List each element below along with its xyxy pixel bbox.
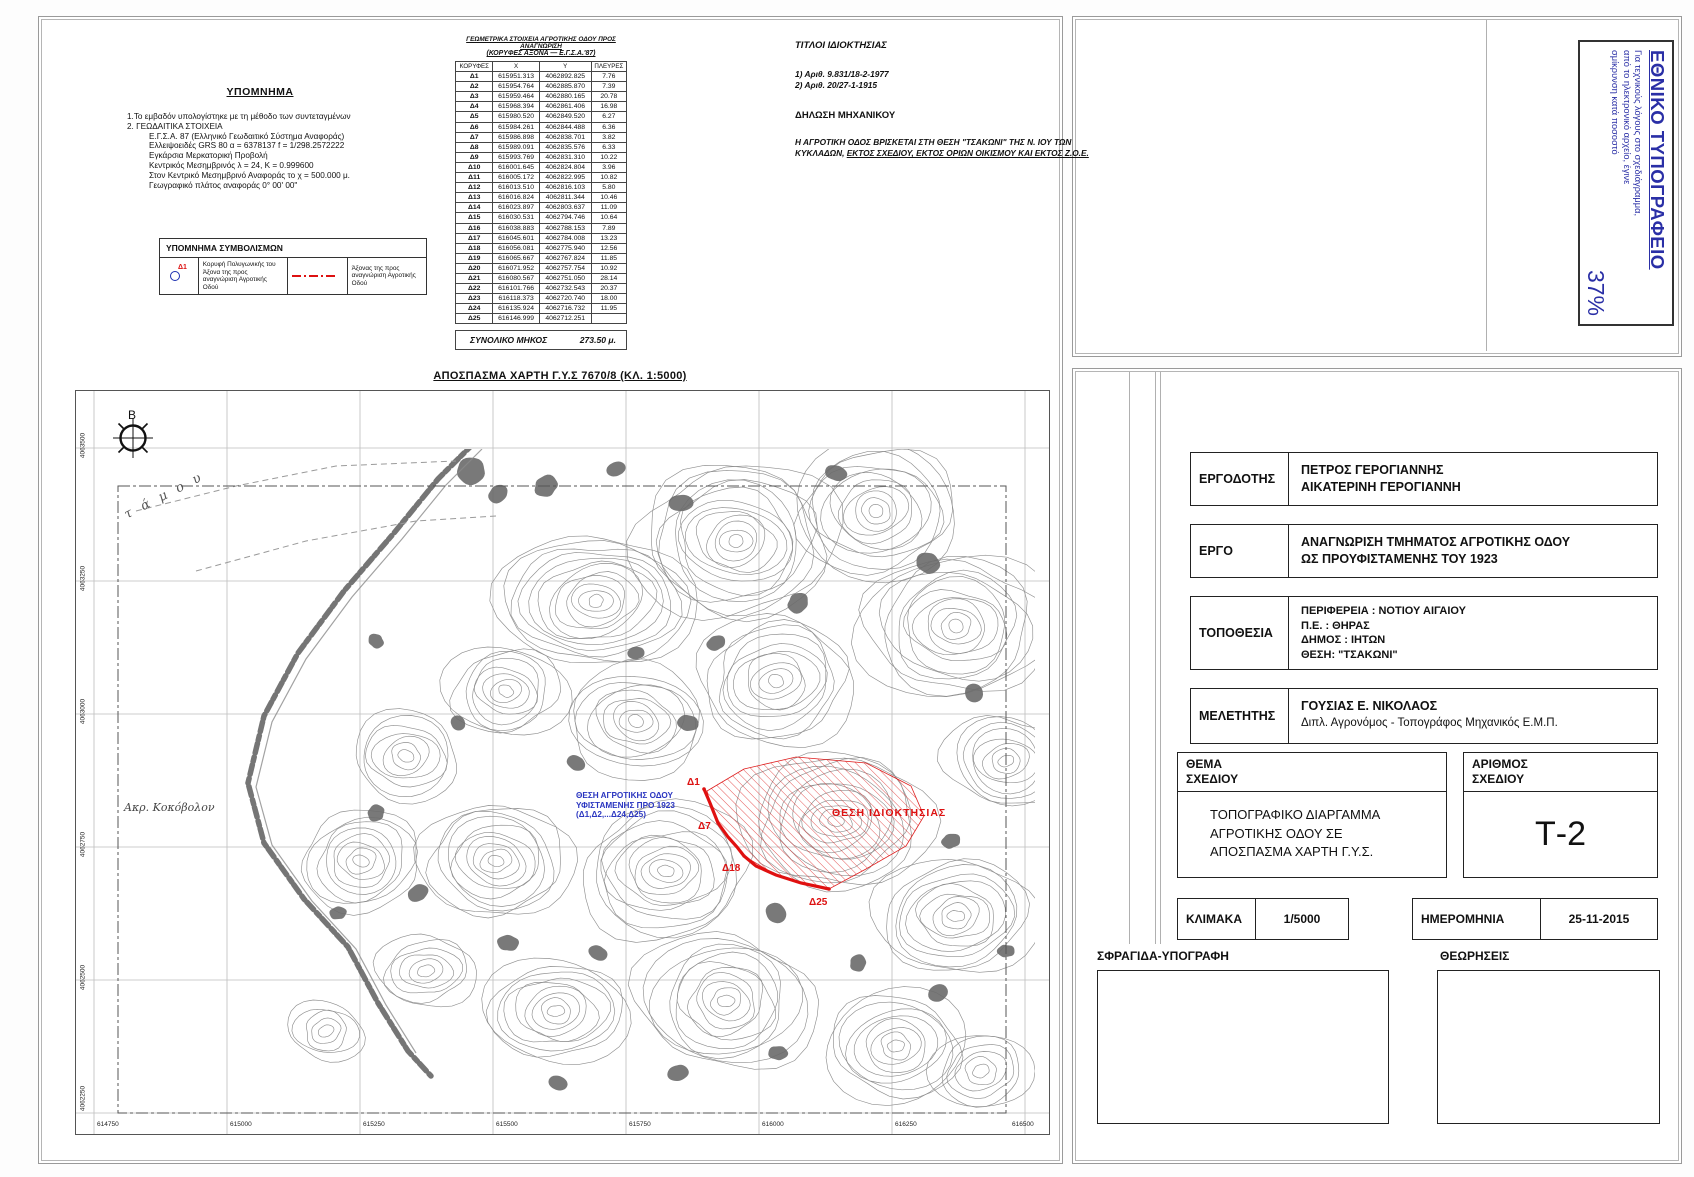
legend-section: 1.Το εμβαδόν υπολογίστηκε με τη μέθοδο τ… [127,112,467,190]
number-label: ΑΡΙΘΜΟΣ [1472,757,1649,772]
coords-cell: 6.33 [591,142,626,152]
vertex-circle-icon [170,271,180,281]
coords-cell: 616118.373 [493,294,539,304]
subject-line: ΤΟΠΟΓΡΑΦΙΚΟ ΔΙΑΡΓΑΜΜΑ [1210,806,1446,825]
col-header: Υ [539,62,591,72]
legend-line: 2. ΓΕΩΔΑΙΤΙΚΑ ΣΤΟΙΧΕΙΑ [127,122,467,132]
coords-cell: Δ14 [456,203,493,213]
declaration-line: Η ΑΓΡΟΤΙΚΗ ΟΔΟΣ ΒΡΙΣΚΕΤΑΙ ΣΤΗ ΘΕΣΗ "ΤΣΑΚ… [795,137,1155,148]
coords-cell: 4062835.576 [539,142,591,152]
subject-label: ΣΧΕΔΙΟΥ [1186,772,1438,787]
coords-row: Δ23616118.3734062720.74018.00 [456,294,627,304]
drawing-number-box: ΑΡΙΘΜΟΣ ΣΧΕΔΙΟΥ Τ-2 [1463,752,1658,878]
coords-cell: 10.22 [591,152,626,162]
coords-cell: 7.76 [591,72,626,82]
coords-cell: 615986.898 [493,132,539,142]
seal-signature-label: ΣΦΡΑΓΙΔΑ-ΥΠΟΓΡΑΦΗ [1094,948,1232,964]
coords-row: Δ19616065.6674062767.82411.85 [456,253,627,263]
coords-row: Δ25616146.9994062712.251 [456,314,627,324]
coords-cell: 3.96 [591,162,626,172]
location-line: ΔΗΜΟΣ : ΙΗΤΩΝ [1301,633,1657,648]
coords-cell: Δ20 [456,263,493,273]
topographic-map: B Δ1Δ7Δ18Δ25 614750615000615250615500615… [75,390,1050,1135]
coords-cell: 20.37 [591,284,626,294]
coords-row: Δ21616080.5674062751.05028.14 [456,273,627,283]
axis-symbol-desc: Άξονας της προς αναγνώριση Αγροτικής Οδο… [347,258,426,294]
y-tick-label: 4062250 [80,1079,87,1119]
declaration-line: ΚΥΚΛΑΔΩΝ, ΕΚΤΟΣ ΣΧΕΔΙΟΥ, ΕΚΤΟΣ ΟΡΙΩΝ ΟΙΚ… [795,148,1155,159]
y-tick-label: 4063000 [80,692,87,732]
coords-cell: 4062775.940 [539,243,591,253]
total-length-row: ΣΥΝΟΛΙΚΟ ΜΗΚΟΣ 273.50 μ. [455,330,627,350]
drawing-subject-box: ΘΕΜΑ ΣΧΕΔΙΟΥ ΤΟΠΟΓΡΑΦΙΚΟ ΔΙΑΡΓΑΜΜΑ ΑΓΡΟΤ… [1177,752,1447,878]
legend-detail: Γεωγραφικό πλάτος αναφοράς 0° 00' 00" [127,181,467,191]
coords-row: Δ8615989.0914062835.5766.33 [456,142,627,152]
fold-mark [1486,20,1487,351]
project-line: ΑΝΑΓΝΩΡΙΣΗ ΤΜΗΜΑΤΟΣ ΑΓΡΟΤΙΚΗΣ ΟΔΟΥ [1301,534,1657,551]
declaration-text: ΚΥΚΛΑΔΩΝ, [795,148,847,158]
vertex-symbol: Δ1 [160,258,198,294]
declaration-section: ΔΗΛΩΣΗ ΜΗΧΑΝΙΚΟΥ Η ΑΓΡΟΤΙΚΗ ΟΔΟΣ ΒΡΙΣΚΕΤ… [795,110,1155,159]
map-tick-labels: 6147506150006152506155006157506160006162… [76,391,1049,1134]
declaration-heading: ΔΗΛΩΣΗ ΜΗΧΑΝΙΚΟΥ [795,110,1155,121]
coords-cell: 616045.601 [493,233,539,243]
coords-cell: 4062751.050 [539,273,591,283]
printing-office-stamp: ΕΘΝΙΚΟ ΤΥΠΟΓΡΑΦΕΙΟ Για τεχνικούς λόγους … [1578,40,1674,326]
coords-cell: 28.14 [591,273,626,283]
titleblock-row-client: ΕΡΓΟΔΟΤΗΣ ΠΕΤΡΟΣ ΓΕΡΟΓΙΑΝΝΗΣ ΑΙΚΑΤΕΡΙΝΗ … [1190,452,1658,506]
note-line: ΘΕΣΗ ΑΓΡΟΤΙΚΗΣ ΟΔΟΥ [576,791,706,801]
number-label: ΣΧΕΔΙΟΥ [1472,772,1649,787]
y-tick-label: 4062500 [80,958,87,998]
coords-cell: 4062849.520 [539,112,591,122]
approvals-box [1437,970,1660,1124]
titleblock-row-project: ΕΡΓΟ ΑΝΑΓΝΩΡΙΣΗ ΤΜΗΜΑΤΟΣ ΑΓΡΟΤΙΚΗΣ ΟΔΟΥ … [1190,524,1658,578]
legend-detail: Εγκάρσια Μερκατορική Προβολή [127,151,467,161]
coords-cell: 4062712.251 [539,314,591,324]
location-line: ΘΕΣΗ: "ΤΣΑΚΩΝΙ" [1301,648,1657,663]
location-line: Π.Ε. : ΘΗΡΑΣ [1301,619,1657,634]
coords-table: ΚΟΡΥΦΕΣ Χ Υ ΠΛΕΥΡΕΣ Δ1615951.3134062892.… [455,61,627,324]
stamp-line: σμίκρυνση κατά ποσοστό [1609,50,1620,316]
surveyor-label: ΜΕΛΕΤΗΤΗΣ [1191,689,1289,743]
ownership-titles-section: ΤΙΤΛΟΙ ΙΔΙΟΚΤΗΣΙΑΣ 1) Αριθ. 9.831/18-2-1… [795,40,1095,90]
coords-cell: Δ6 [456,122,493,132]
drawing-number: Τ-2 [1464,792,1657,876]
symbols-legend: ΥΠΟΜΝΗΜΑ ΣΥΜΒΟΛΙΣΜΩΝ Δ1 Κορυφή Πολυγωνικ… [159,238,427,295]
map-extract-title: ΑΠΟΣΠΑΣΜΑ ΧΑΡΤΗ Γ.Υ.Σ 7670/8 (ΚΛ. 1:5000… [370,370,750,382]
cape-place-label: Ακρ. Κοκόβολον [124,801,215,814]
date-value: 25-11-2015 [1541,899,1657,939]
coords-cell: 18.00 [591,294,626,304]
stamp-line: Για τεχνικούς λόγους στο σχεδιάγραμμα, [1632,50,1643,316]
coords-cell: Δ13 [456,193,493,203]
x-tick-label: 616500 [1012,1121,1034,1128]
coords-cell: 616038.883 [493,223,539,233]
coords-row: Δ22616101.7664062732.54320.37 [456,284,627,294]
coords-cell: Δ1 [456,72,493,82]
titleblock-row-surveyor: ΜΕΛΕΤΗΤΗΣ ΓΟΥΣΙΑΣ Ε. ΝΙΚΟΛΑΟΣ Διπλ. Αγρο… [1190,688,1658,744]
coords-row: Δ5615980.5204062849.5206.27 [456,112,627,122]
note-line: (Δ1,Δ2,...Δ24,Δ25) [576,810,706,820]
coords-row: Δ2615954.7644062885.8707.39 [456,82,627,92]
coords-cell: Δ4 [456,102,493,112]
coords-cell: 4062824.804 [539,162,591,172]
subject-line: ΑΠΟΣΠΑΣΜΑ ΧΑΡΤΗ Γ.Υ.Σ. [1210,843,1446,862]
coords-cell: Δ16 [456,223,493,233]
coords-cell: Δ10 [456,162,493,172]
ownership-title-item: 1) Αριθ. 9.831/18-2-1977 [795,69,1095,80]
coords-row: Δ16616038.8834062788.1537.89 [456,223,627,233]
coords-cell: 4062757.754 [539,263,591,273]
x-tick-label: 616000 [762,1121,784,1128]
titleblock-row-location: ΤΟΠΟΘΕΣΙΑ ΠΕΡΙΦΕΡΕΙΑ : ΝΟΤΙΟΥ ΑΙΓΑΙΟΥ Π.… [1190,596,1658,670]
coords-cell: 4062716.732 [539,304,591,314]
coords-cell: 4062861.406 [539,102,591,112]
coords-cell: 4062767.824 [539,253,591,263]
coords-cell: Δ22 [456,284,493,294]
coords-cell: Δ2 [456,82,493,92]
date-box: ΗΜΕΡΟΜΗΝΙΑ 25-11-2015 [1412,898,1658,940]
client-name: ΑΙΚΑΤΕΡΙΝΗ ΓΕΡΟΓΙΑΝΝΗ [1301,479,1657,496]
coords-cell: 3.82 [591,132,626,142]
coords-cell: 616030.531 [493,213,539,223]
y-tick-label: 4063500 [80,426,87,466]
vertex-symbol-label: Δ1 [178,264,187,272]
coords-table-subtitle: (ΚΟΡΥΦΕΣ ΑΞΟΝΑ — Ε.Γ.Σ.Α.'87) [455,50,627,57]
coords-cell: 4062720.740 [539,294,591,304]
ownership-titles-heading: ΤΙΤΛΟΙ ΙΔΙΟΚΤΗΣΙΑΣ [795,40,1095,51]
coords-cell: 5.80 [591,183,626,193]
coords-row: Δ18616056.0814062775.94012.56 [456,243,627,253]
coords-row: Δ24616135.9244062716.73211.95 [456,304,627,314]
coords-cell: 615980.520 [493,112,539,122]
coords-row: Δ3615959.4644062880.16520.78 [456,92,627,102]
coords-cell: Δ9 [456,152,493,162]
coords-cell: 4062831.310 [539,152,591,162]
x-tick-label: 614750 [97,1121,119,1128]
coords-row: Δ6615984.2614062844.4886.36 [456,122,627,132]
coords-row: Δ13616016.8244062811.34410.46 [456,193,627,203]
drawing-sheet: { "legend": { "title": "ΥΠΟΜΝΗΜΑ", "line… [0,0,1694,1177]
coords-cell: 4062811.344 [539,193,591,203]
subject-label: ΘΕΜΑ [1186,757,1438,772]
total-length-value: 273.50 μ. [580,335,616,345]
coords-cell: 13.23 [591,233,626,243]
coords-cell: 615993.769 [493,152,539,162]
coords-cell: Δ5 [456,112,493,122]
coords-cell: Δ19 [456,253,493,263]
location-line: ΠΕΡΙΦΕΡΕΙΑ : ΝΟΤΙΟΥ ΑΙΓΑΙΟΥ [1301,604,1657,619]
coords-cell: 4062838.701 [539,132,591,142]
declaration-underlined-text: ΕΚΤΟΣ ΣΧΕΔΙΟΥ, ΕΚΤΟΣ ΟΡΙΩΝ ΟΙΚΙΣΜΟΥ ΚΑΙ … [847,148,1089,158]
coords-cell: 4062885.870 [539,82,591,92]
coords-cell: 6.27 [591,112,626,122]
coords-row: Δ15616030.5314062794.74610.64 [456,213,627,223]
coords-cell: 615954.764 [493,82,539,92]
coords-row: Δ7615986.8984062838.7013.82 [456,132,627,142]
coords-cell: 4062892.825 [539,72,591,82]
stamp-line: από το ηλεκτρονικό αρχείο, έγινε [1620,50,1631,316]
coords-row: Δ4615968.3944062861.40616.98 [456,102,627,112]
coords-row: Δ20616071.9524062757.75410.92 [456,263,627,273]
coords-cell: 616056.081 [493,243,539,253]
coords-cell: 616013.510 [493,183,539,193]
scale-box: ΚΛΙΜΑΚΑ 1/5000 [1177,898,1349,940]
coords-cell: 4062803.637 [539,203,591,213]
coords-cell: 10.64 [591,213,626,223]
x-tick-label: 615500 [496,1121,518,1128]
surveyor-credentials: Διπλ. Αγρονόμος - Τοπογράφος Μηχανικός Ε… [1301,715,1657,731]
y-tick-label: 4063250 [80,559,87,599]
coords-cell: 16.98 [591,102,626,112]
coords-cell: Δ21 [456,273,493,283]
col-header: ΚΟΡΥΦΕΣ [456,62,493,72]
coords-cell: 20.78 [591,92,626,102]
axis-line-icon [292,275,338,277]
date-label: ΗΜΕΡΟΜΗΝΙΑ [1413,899,1541,939]
coords-cell: 4062844.488 [539,122,591,132]
coords-cell: 4062794.746 [539,213,591,223]
fold-mark [1160,372,1161,944]
fold-mark [1129,372,1130,944]
coords-cell: Δ3 [456,92,493,102]
coords-cell: 616016.824 [493,193,539,203]
legend-detail: Στον Κεντρικό Μεσημβρινό Αναφοράς το χ =… [127,171,467,181]
coords-cell: 4062788.153 [539,223,591,233]
coords-table-title: ΓΕΩΜΕΤΡΙΚΑ ΣΤΟΙΧΕΙΑ ΑΓΡΟΤΙΚΗΣ ΟΔΟΥ ΠΡΟΣ … [455,36,627,50]
coords-cell: 616101.766 [493,284,539,294]
coords-cell: 11.85 [591,253,626,263]
property-position-note: ΘΕΣΗ ΙΔΙΟΚΤΗΣΙΑΣ [832,807,946,819]
legend-detail: Ελλειψοειδές GRS 80 α = 6378137 f = 1/29… [127,141,467,151]
scale-label: ΚΛΙΜΑΚΑ [1178,899,1256,939]
coords-cell: 7.39 [591,82,626,92]
coords-cell: 4062880.165 [539,92,591,102]
x-tick-label: 616250 [895,1121,917,1128]
stamp-reduction-percent: 37% [1582,270,1609,316]
coords-cell: Δ8 [456,142,493,152]
subject-line: ΑΓΡΟΤΙΚΗΣ ΟΔΟΥ ΣΕ [1210,825,1446,844]
coords-cell: 11.95 [591,304,626,314]
total-length-label: ΣΥΝΟΛΙΚΟ ΜΗΚΟΣ [470,335,547,345]
coords-table-section: ΓΕΩΜΕΤΡΙΚΑ ΣΤΟΙΧΕΙΑ ΑΓΡΟΤΙΚΗΣ ΟΔΟΥ ΠΡΟΣ … [455,36,627,350]
coords-cell: 4062822.995 [539,173,591,183]
coords-cell: 11.09 [591,203,626,213]
x-tick-label: 615000 [230,1121,252,1128]
coords-cell [591,314,626,324]
legend-title: ΥΠΟΜΝΗΜΑ [160,86,360,98]
symbols-legend-title: ΥΠΟΜΝΗΜΑ ΣΥΜΒΟΛΙΣΜΩΝ [160,239,426,258]
stamp-title: ΕΘΝΙΚΟ ΤΥΠΟΓΡΑΦΕΙΟ [1646,50,1668,316]
coords-cell: 616071.952 [493,263,539,273]
coords-cell: 616135.924 [493,304,539,314]
coords-cell: Δ23 [456,294,493,304]
location-label: ΤΟΠΟΘΕΣΙΑ [1191,597,1289,669]
coords-cell: 615959.464 [493,92,539,102]
seal-signature-box [1097,970,1389,1124]
coords-cell: 616080.567 [493,273,539,283]
coords-cell: 6.36 [591,122,626,132]
note-line: ΥΦΙΣΤΑΜΕΝΗΣ ΠΡΟ 1923 [576,801,706,811]
coords-cell: Δ15 [456,213,493,223]
col-header: ΠΛΕΥΡΕΣ [591,62,626,72]
y-tick-label: 4062750 [80,825,87,865]
legend-detail: Κεντρικός Μεσημβρινός λ = 24, Κ = 0.9996… [127,161,467,171]
vertex-symbol-desc: Κορυφή Πολυγωνικής του Άξονα της προς αν… [198,258,287,294]
coords-row: Δ1615951.3134062892.8257.76 [456,72,627,82]
coords-cell: Δ24 [456,304,493,314]
coords-cell: 4062732.543 [539,284,591,294]
coords-cell: 10.46 [591,193,626,203]
client-label: ΕΡΓΟΔΟΤΗΣ [1191,453,1289,505]
coords-cell: Δ11 [456,173,493,183]
x-tick-label: 615750 [629,1121,651,1128]
coords-cell: 616001.645 [493,162,539,172]
coords-cell: 7.89 [591,223,626,233]
approvals-label: ΘΕΩΡΗΣΕΙΣ [1437,948,1512,964]
project-line: ΩΣ ΠΡΟΥΦΙΣΤΑΜΕΝΗΣ ΤΟΥ 1923 [1301,551,1657,568]
coords-cell: Δ12 [456,183,493,193]
scale-value: 1/5000 [1256,899,1348,939]
client-name: ΠΕΤΡΟΣ ΓΕΡΟΓΙΑΝΝΗΣ [1301,462,1657,479]
coords-table-body: Δ1615951.3134062892.8257.76Δ2615954.7644… [456,72,627,324]
coords-cell: 615989.091 [493,142,539,152]
coords-row: Δ17616045.6014062784.00813.23 [456,233,627,243]
coords-cell: Δ25 [456,314,493,324]
project-label: ΕΡΓΟ [1191,525,1289,577]
coords-cell: 10.82 [591,173,626,183]
surveyor-name: ΓΟΥΣΙΑΣ Ε. ΝΙΚΟΛΑΟΣ [1301,698,1657,715]
x-tick-label: 615250 [363,1121,385,1128]
coords-cell: 4062784.008 [539,233,591,243]
coords-row: Δ14616023.8974062803.63711.09 [456,203,627,213]
coords-cell: 10.92 [591,263,626,273]
road-position-note: ΘΕΣΗ ΑΓΡΟΤΙΚΗΣ ΟΔΟΥ ΥΦΙΣΤΑΜΕΝΗΣ ΠΡΟ 1923… [576,791,706,820]
legend-detail: Ε.Γ.Σ.Α. 87 (Ελληνικό Γεωδαιτικό Σύστημα… [127,132,467,142]
coords-cell: 616065.667 [493,253,539,263]
legend-line: 1.Το εμβαδόν υπολογίστηκε με τη μέθοδο τ… [127,112,467,122]
coords-row: Δ12616013.5104062816.1035.80 [456,183,627,193]
fold-mark [1155,372,1156,944]
coords-cell: Δ17 [456,233,493,243]
coords-cell: 4062816.103 [539,183,591,193]
coords-cell: 616023.897 [493,203,539,213]
coords-row: Δ9615993.7694062831.31010.22 [456,152,627,162]
coords-cell: 616146.999 [493,314,539,324]
axis-symbol [287,258,347,294]
coords-cell: 616005.172 [493,173,539,183]
ownership-title-item: 2) Αριθ. 20/27-1-1915 [795,80,1095,91]
coords-row: Δ10616001.6454062824.8043.96 [456,162,627,172]
coords-cell: 615984.261 [493,122,539,132]
col-header: Χ [493,62,539,72]
coords-cell: 615951.313 [493,72,539,82]
coords-cell: Δ18 [456,243,493,253]
coords-cell: 615968.394 [493,102,539,112]
coords-cell: Δ7 [456,132,493,142]
coords-cell: 12.56 [591,243,626,253]
coords-row: Δ11616005.1724062822.99510.82 [456,173,627,183]
